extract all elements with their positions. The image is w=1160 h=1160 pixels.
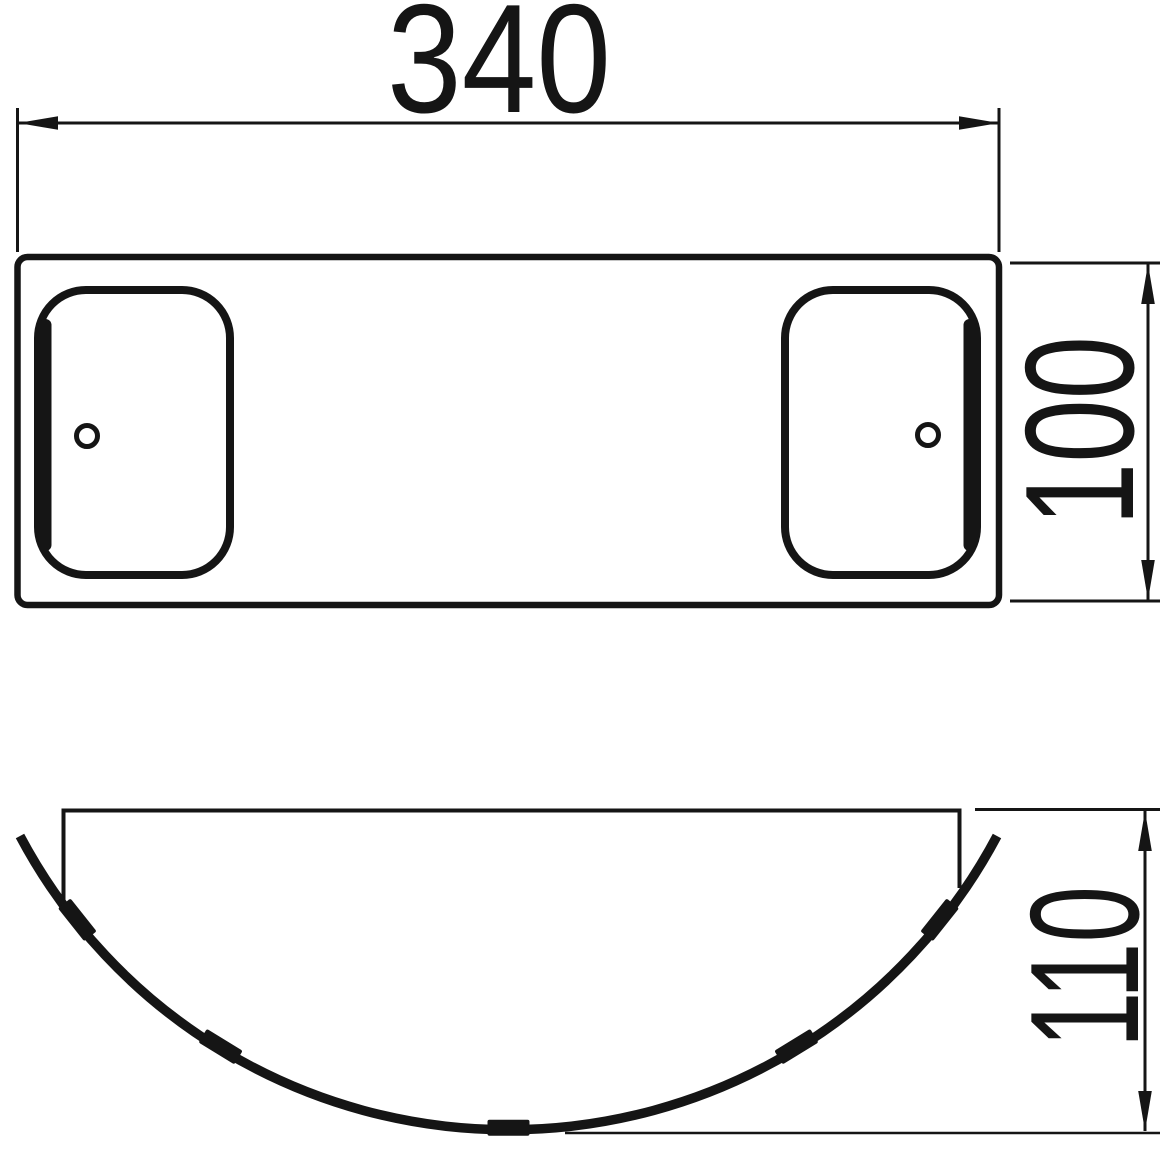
retaining-clip (58, 898, 97, 941)
technical-drawing-canvas: 340 100 (0, 0, 1160, 1160)
drawing-sheet: 340 100 (0, 0, 1160, 1160)
arrow-up-icon (1138, 811, 1152, 851)
arrow-down-icon (1138, 1091, 1152, 1131)
retaining-clip (774, 1029, 818, 1065)
mounting-backplate (64, 811, 960, 901)
arrow-down-icon (1141, 560, 1155, 600)
width-dimension-label: 340 (387, 0, 611, 145)
plan-view (18, 257, 1000, 605)
profile-view (20, 811, 997, 1136)
depth-dimension-label: 110 (998, 886, 1160, 1048)
arrow-left-icon (18, 116, 58, 130)
height-dimension-label: 100 (993, 336, 1160, 526)
retaining-clips (58, 898, 959, 1135)
depth-dimension: 110 (565, 810, 1160, 1134)
width-dimension: 340 (18, 0, 1000, 252)
fixture-body-outline (18, 257, 1000, 605)
diffuser-arc (20, 836, 997, 1130)
retaining-clip (199, 1029, 243, 1065)
height-dimension: 100 (993, 263, 1160, 601)
retaining-clip (488, 1120, 530, 1136)
arrow-right-icon (959, 116, 999, 130)
retaining-clip (920, 898, 959, 941)
arrow-up-icon (1141, 264, 1155, 304)
